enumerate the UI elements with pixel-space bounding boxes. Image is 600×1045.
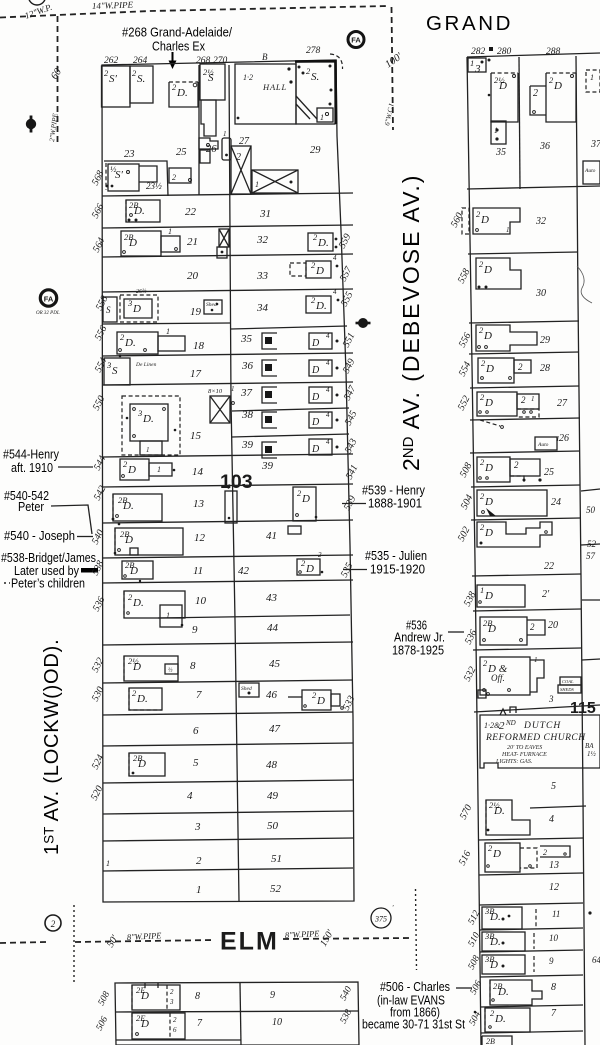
svg-text:1½: 1½ [587, 750, 597, 758]
svg-text:7: 7 [551, 1008, 557, 1019]
svg-text:557: 557 [338, 264, 355, 283]
svg-text:2: 2 [543, 848, 547, 857]
svg-text:4: 4 [326, 359, 330, 367]
svg-text:1: 1 [223, 130, 227, 138]
svg-text:2: 2 [514, 460, 519, 470]
svg-text:D: D [140, 1018, 149, 1030]
svg-text:36: 36 [241, 360, 254, 372]
svg-text:20: 20 [548, 620, 558, 631]
svg-text:D: D [483, 264, 492, 276]
svg-text:D: D [129, 565, 138, 577]
svg-text:2: 2 [172, 173, 176, 182]
svg-text:13: 13 [549, 860, 559, 871]
svg-text:FA: FA [351, 36, 361, 45]
svg-text:23½: 23½ [146, 181, 162, 191]
svg-text:530: 530 [90, 685, 107, 703]
svg-text:14"W.PIPE: 14"W.PIPE [92, 0, 134, 11]
svg-text:D: D [128, 237, 137, 249]
svg-text:3: 3 [548, 694, 554, 704]
svg-text:560: 560 [449, 211, 466, 229]
svg-text:278: 278 [306, 46, 321, 56]
svg-text:1: 1 [231, 385, 235, 393]
svg-text:536: 536 [91, 595, 108, 613]
svg-text:D: D [127, 464, 136, 476]
svg-text:10: 10 [272, 1017, 282, 1028]
svg-text:2: 2 [533, 88, 538, 99]
svg-text:D: D [311, 392, 320, 403]
svg-text:43: 43 [266, 592, 278, 604]
svg-text:1: 1 [320, 113, 324, 122]
svg-text:D.: D. [494, 1013, 506, 1025]
svg-text:D: D [498, 80, 507, 92]
svg-text:25: 25 [544, 467, 554, 478]
svg-text:7: 7 [196, 689, 202, 701]
svg-text:S′: S′ [115, 169, 124, 181]
svg-text:2: 2 [236, 152, 241, 163]
svg-text:½: ½ [168, 667, 173, 674]
svg-text:100′: 100′ [383, 51, 405, 71]
svg-text:D.: D. [176, 87, 188, 99]
svg-text:Off.: Off. [491, 673, 505, 683]
svg-text:3: 3 [194, 821, 201, 833]
svg-text:became 30-71 31st St: became 30-71 31st St [362, 1018, 465, 1032]
svg-text:32: 32 [256, 234, 269, 246]
svg-text:1: 1 [166, 611, 170, 620]
svg-text:45: 45 [269, 658, 281, 670]
svg-text:103: 103 [220, 471, 253, 493]
svg-text:GRAND: GRAND [426, 12, 513, 35]
svg-text:36: 36 [539, 141, 550, 152]
svg-text:42: 42 [238, 565, 250, 577]
svg-text:LIGHTS: GAS.: LIGHTS: GAS. [495, 759, 532, 765]
svg-text:556: 556 [93, 324, 110, 342]
svg-text:D: D [301, 493, 310, 505]
svg-text:DUTCH: DUTCH [523, 721, 561, 731]
svg-text:508: 508 [458, 461, 475, 479]
svg-text:14: 14 [192, 466, 204, 478]
svg-text:D: D [480, 214, 489, 226]
svg-text:532: 532 [90, 656, 107, 674]
svg-text:44: 44 [267, 622, 279, 634]
svg-text:564: 564 [91, 236, 108, 254]
svg-text:D: D [484, 462, 493, 474]
svg-text:264: 264 [133, 56, 148, 66]
svg-text:S: S [106, 305, 111, 315]
svg-text:4: 4 [326, 386, 330, 394]
svg-text:508: 508 [97, 990, 112, 1007]
svg-text:52: 52 [270, 883, 282, 895]
svg-text:15: 15 [190, 430, 202, 442]
svg-text:2: 2 [530, 622, 535, 632]
svg-text:4: 4 [326, 411, 330, 419]
svg-text:27: 27 [239, 136, 250, 147]
svg-text:25: 25 [176, 147, 187, 158]
svg-text:536: 536 [463, 628, 480, 646]
svg-text:50′: 50′ [105, 933, 121, 950]
svg-text:8: 8 [551, 982, 556, 993]
svg-text:11: 11 [193, 565, 203, 577]
svg-text:12: 12 [194, 532, 206, 544]
svg-text:559: 559 [337, 232, 354, 250]
svg-text:543: 543 [343, 437, 360, 455]
svg-text:4: 4 [326, 332, 330, 340]
svg-text:S′: S′ [109, 73, 118, 85]
svg-text:2: 2 [499, 720, 505, 732]
svg-text:#539 - Henry: #539 - Henry [362, 484, 426, 498]
svg-text:D: D [484, 527, 493, 539]
svg-text:D: D [484, 397, 493, 409]
svg-text:D.: D. [136, 693, 148, 705]
svg-text:D: D [132, 661, 141, 673]
svg-text:2′: 2′ [542, 589, 550, 600]
svg-text:Andrew Jr.: Andrew Jr. [394, 631, 445, 645]
svg-text:11: 11 [552, 909, 560, 919]
svg-text:D: D [553, 80, 562, 92]
svg-text:7: 7 [197, 1018, 203, 1029]
svg-text:3: 3 [106, 360, 111, 370]
svg-text:Charles Ex: Charles Ex [152, 40, 206, 54]
svg-text:4: 4 [333, 254, 337, 262]
svg-text:2ND AV. (DEBEVOSE AV.): 2ND AV. (DEBEVOSE AV.) [398, 174, 424, 471]
svg-text:9: 9 [549, 956, 554, 966]
svg-text:S: S [208, 72, 214, 84]
svg-text:30: 30 [535, 288, 546, 299]
svg-text:D: D [487, 623, 496, 635]
svg-text:D.: D. [315, 300, 327, 312]
svg-text:50: 50 [586, 505, 596, 515]
svg-text:SHEDS: SHEDS [560, 687, 574, 692]
svg-text:1ST AV. (LOCKW()OD).: 1ST AV. (LOCKW()OD). [41, 639, 63, 855]
svg-text:48: 48 [266, 759, 278, 771]
svg-text:COAL: COAL [562, 679, 574, 684]
svg-text:D.: D. [122, 500, 134, 512]
svg-text:3: 3 [127, 298, 132, 308]
svg-text:D: D [311, 338, 320, 349]
svg-text:8: 8 [190, 660, 196, 672]
svg-text:D: D [485, 363, 494, 375]
svg-text:50: 50 [267, 820, 279, 832]
svg-text:D: D [316, 695, 325, 707]
svg-text:Auto: Auto [537, 442, 549, 448]
svg-text:516: 516 [457, 849, 474, 867]
svg-text:37: 37 [590, 139, 600, 150]
svg-text:Shed: Shed [241, 686, 252, 692]
svg-text:502: 502 [456, 525, 473, 543]
svg-text:ELM: ELM [220, 928, 279, 956]
svg-text:540: 540 [339, 985, 354, 1002]
svg-text:539: 539 [342, 494, 359, 512]
svg-text:554: 554 [457, 360, 474, 378]
svg-text:#544-Henry: #544-Henry [3, 448, 60, 462]
svg-text:2: 2 [518, 362, 523, 372]
svg-text:540: 540 [90, 528, 107, 546]
svg-text:#268 Grand-Adelaide/: #268 Grand-Adelaide/ [122, 26, 232, 40]
svg-text:506: 506 [95, 1015, 110, 1032]
svg-text:OR 32 PDL: OR 32 PDL [36, 311, 60, 316]
svg-text:504: 504 [459, 493, 476, 511]
svg-text:1: 1 [480, 585, 484, 595]
svg-text:19: 19 [190, 306, 202, 318]
svg-text:3: 3 [169, 998, 174, 1006]
svg-text:1: 1 [168, 227, 172, 236]
svg-text:1: 1 [227, 483, 231, 491]
svg-text:D.: D. [497, 986, 509, 998]
svg-text:HALL: HALL [262, 82, 287, 92]
svg-text:D.: D. [142, 413, 154, 425]
svg-text:REFORMED CHURCH: REFORMED CHURCH [485, 733, 586, 743]
svg-text:D: D [311, 417, 320, 428]
svg-text:D: D [311, 444, 320, 455]
svg-text:26½: 26½ [136, 288, 147, 295]
svg-text:1915-1920: 1915-1920 [370, 563, 425, 577]
svg-text:BA: BA [585, 742, 594, 750]
svg-text:288: 288 [546, 47, 561, 57]
svg-text:35: 35 [495, 147, 506, 158]
svg-text:Peter: Peter [18, 500, 44, 514]
svg-text:541: 541 [344, 463, 361, 481]
svg-text:D.: D. [493, 805, 505, 817]
svg-text:17: 17 [190, 368, 202, 380]
svg-text:2B: 2B [486, 1037, 495, 1045]
svg-text:B: B [262, 52, 268, 62]
svg-text:64: 64 [592, 955, 600, 965]
svg-text:#538-Bridget/James: #538-Bridget/James [1, 551, 96, 565]
svg-text:38: 38 [241, 409, 254, 421]
svg-text:9: 9 [192, 624, 198, 636]
svg-text:31: 31 [259, 208, 271, 220]
svg-text:D: D [484, 496, 493, 508]
svg-text:524: 524 [90, 753, 107, 771]
svg-text:545: 545 [343, 409, 360, 427]
svg-text:52: 52 [587, 539, 597, 549]
svg-text:552: 552 [456, 394, 473, 412]
svg-text:Peter’s children: Peter’s children [11, 577, 85, 591]
svg-text:#540 - Joseph: #540 - Joseph [4, 529, 75, 543]
svg-text:34: 34 [256, 302, 269, 314]
svg-text:8"W.PIPE: 8"W.PIPE [127, 930, 163, 942]
svg-text:2: 2 [170, 988, 174, 996]
svg-text:5: 5 [551, 781, 556, 792]
svg-text:506: 506 [469, 979, 484, 996]
svg-text:1: 1 [590, 73, 594, 82]
svg-text:12: 12 [549, 882, 559, 893]
svg-text:4: 4 [333, 288, 337, 296]
svg-text:D: D [311, 365, 320, 376]
svg-text:551: 551 [341, 331, 358, 349]
svg-text:24: 24 [551, 497, 561, 508]
svg-text:2: 2 [196, 855, 202, 867]
svg-text:D.: D. [489, 911, 501, 923]
svg-text:20′ TO EAVES: 20′ TO EAVES [507, 745, 542, 751]
svg-text:22: 22 [185, 206, 197, 218]
svg-text:S.: S. [311, 71, 319, 83]
svg-text:1888-1901: 1888-1901 [368, 497, 422, 511]
svg-text:D: D [305, 563, 314, 575]
svg-text:#506 - Charles: #506 - Charles [380, 980, 450, 994]
svg-text:27: 27 [557, 398, 568, 409]
svg-text:566: 566 [90, 202, 107, 220]
svg-text:533: 533 [341, 694, 358, 712]
svg-text:57: 57 [586, 551, 596, 561]
svg-text:D: D [132, 303, 141, 315]
svg-text:1: 1 [531, 395, 535, 403]
svg-text:D.: D. [124, 337, 136, 349]
svg-text:2: 2 [173, 1016, 177, 1024]
svg-text:49: 49 [267, 790, 279, 802]
svg-text:ND: ND [505, 719, 516, 727]
svg-text:39: 39 [261, 460, 274, 472]
svg-text:570: 570 [458, 803, 475, 821]
svg-text:D: D [492, 848, 501, 860]
svg-text:26: 26 [559, 433, 569, 444]
svg-text:D.: D. [132, 597, 144, 609]
svg-text:D: D [483, 330, 492, 342]
svg-text:28: 28 [540, 363, 550, 374]
svg-text:47: 47 [269, 723, 281, 735]
svg-text:D: D [489, 959, 498, 971]
svg-text:2: 2 [521, 395, 526, 405]
svg-text:D.: D. [489, 936, 501, 948]
svg-text:2: 2 [51, 919, 56, 929]
svg-text:Shed: Shed [206, 302, 217, 308]
svg-text:D: D [140, 990, 149, 1002]
svg-text:aft. 1910: aft. 1910 [11, 461, 53, 475]
svg-text:35: 35 [240, 333, 253, 345]
svg-text:D.: D. [317, 237, 329, 249]
svg-text:4: 4 [187, 790, 193, 802]
svg-text:13: 13 [193, 498, 205, 510]
svg-text:8"W.PIPE: 8"W.PIPE [285, 928, 321, 940]
svg-text:1878-1925: 1878-1925 [392, 644, 444, 658]
svg-text:1: 1 [494, 126, 498, 135]
svg-text:568: 568 [90, 169, 107, 187]
svg-text:23: 23 [124, 149, 135, 160]
svg-text:D: D [124, 534, 133, 546]
svg-text:282: 282 [471, 47, 486, 57]
svg-text:262: 262 [104, 56, 119, 66]
svg-text:8: 8 [195, 991, 200, 1002]
svg-text:60′: 60′ [49, 64, 65, 81]
svg-text:20: 20 [187, 270, 199, 282]
svg-text:1: 1 [470, 58, 474, 68]
svg-text:D: D [315, 265, 324, 277]
svg-text:De Linen: De Linen [135, 362, 157, 368]
svg-text:549: 549 [341, 357, 358, 375]
svg-text:550: 550 [91, 394, 108, 412]
svg-text:51: 51 [271, 853, 282, 865]
svg-text:3: 3 [474, 63, 481, 75]
svg-text:10: 10 [195, 595, 207, 607]
svg-text:375: 375 [374, 915, 387, 924]
svg-text:41: 41 [266, 530, 277, 542]
svg-text:547: 547 [342, 383, 359, 402]
svg-text:555: 555 [339, 290, 356, 308]
svg-text:2: 2 [318, 551, 322, 559]
svg-text:29: 29 [310, 145, 321, 156]
svg-text:1: 1 [157, 465, 161, 474]
svg-text:32: 32 [535, 216, 546, 227]
svg-text:37: 37 [240, 387, 253, 399]
svg-text:Auto: Auto [584, 168, 596, 174]
svg-text:8×10: 8×10 [208, 388, 223, 395]
svg-text:1: 1 [506, 226, 510, 234]
svg-text:22: 22 [544, 561, 554, 572]
svg-text:21: 21 [187, 236, 198, 248]
svg-text:′: ′ [392, 904, 394, 912]
svg-text:#535 - Julien: #535 - Julien [365, 549, 427, 563]
svg-text:10: 10 [549, 933, 559, 943]
svg-text:FA: FA [44, 295, 54, 304]
svg-text:1: 1 [534, 656, 538, 664]
svg-text:9: 9 [270, 990, 275, 1001]
svg-text:18: 18 [193, 340, 205, 352]
svg-text:5: 5 [193, 757, 199, 769]
svg-text:4: 4 [326, 438, 330, 446]
svg-text:6: 6 [193, 725, 199, 737]
svg-text:6: 6 [173, 1026, 177, 1034]
svg-text:D: D [484, 590, 493, 602]
svg-text:46: 46 [266, 689, 278, 701]
svg-text:1: 1 [166, 327, 170, 336]
svg-text:535: 535 [339, 561, 356, 579]
svg-text:1·2: 1·2 [243, 73, 253, 82]
svg-text:29: 29 [540, 335, 550, 346]
svg-text:1: 1 [146, 446, 150, 454]
svg-text:3: 3 [137, 408, 142, 418]
svg-text:1: 1 [255, 180, 259, 189]
svg-text:D: D [137, 758, 146, 770]
svg-text:D.: D. [133, 205, 145, 217]
svg-text:S.: S. [137, 73, 145, 85]
svg-text:HEAT- FURNACE: HEAT- FURNACE [501, 752, 547, 758]
svg-text:39: 39 [241, 439, 254, 451]
svg-text:4: 4 [549, 814, 554, 825]
svg-text:S: S [112, 365, 118, 377]
svg-text:33: 33 [256, 270, 269, 282]
svg-text:1: 1 [106, 859, 110, 868]
svg-text:1: 1 [196, 884, 202, 896]
